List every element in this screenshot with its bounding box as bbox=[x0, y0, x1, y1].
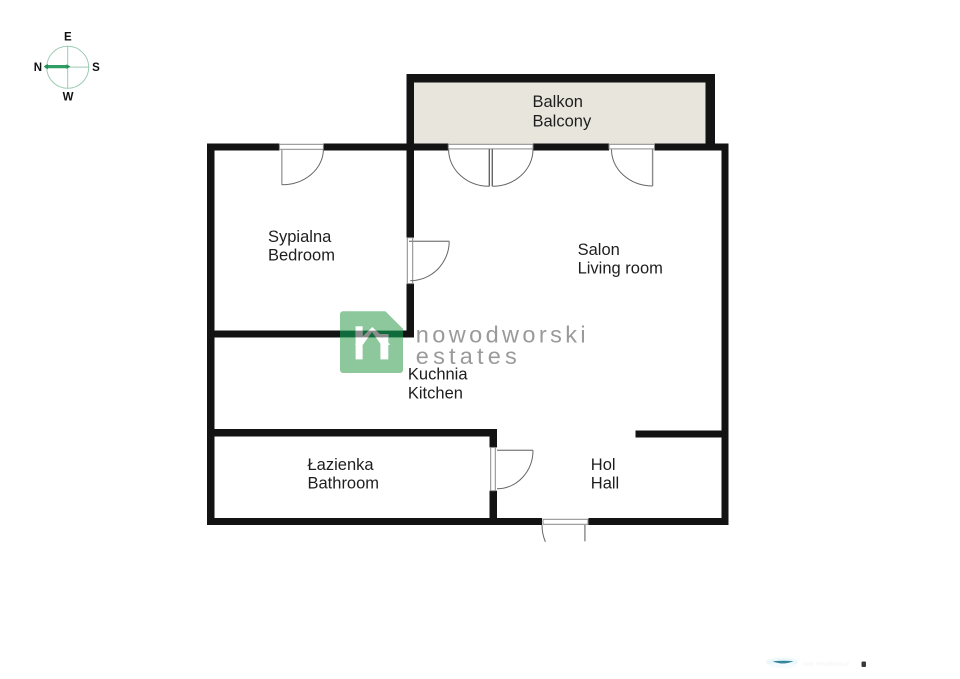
svg-text:S: S bbox=[92, 62, 100, 74]
svg-text:rzuty mieszkania pl: rzuty mieszkania pl bbox=[802, 662, 849, 668]
svg-text:ŁazienkaBathroom: ŁazienkaBathroom bbox=[308, 456, 380, 493]
svg-text:HolHall: HolHall bbox=[591, 456, 619, 492]
svg-text:SalonLiving room: SalonLiving room bbox=[578, 241, 663, 278]
svg-text:estates: estates bbox=[416, 343, 521, 369]
svg-text:KuchniaKitchen: KuchniaKitchen bbox=[408, 366, 468, 403]
svg-text:W: W bbox=[63, 92, 74, 104]
svg-text:N: N bbox=[34, 62, 42, 74]
svg-text:E: E bbox=[64, 31, 72, 43]
svg-text:SypialnaBedroom: SypialnaBedroom bbox=[268, 228, 335, 265]
